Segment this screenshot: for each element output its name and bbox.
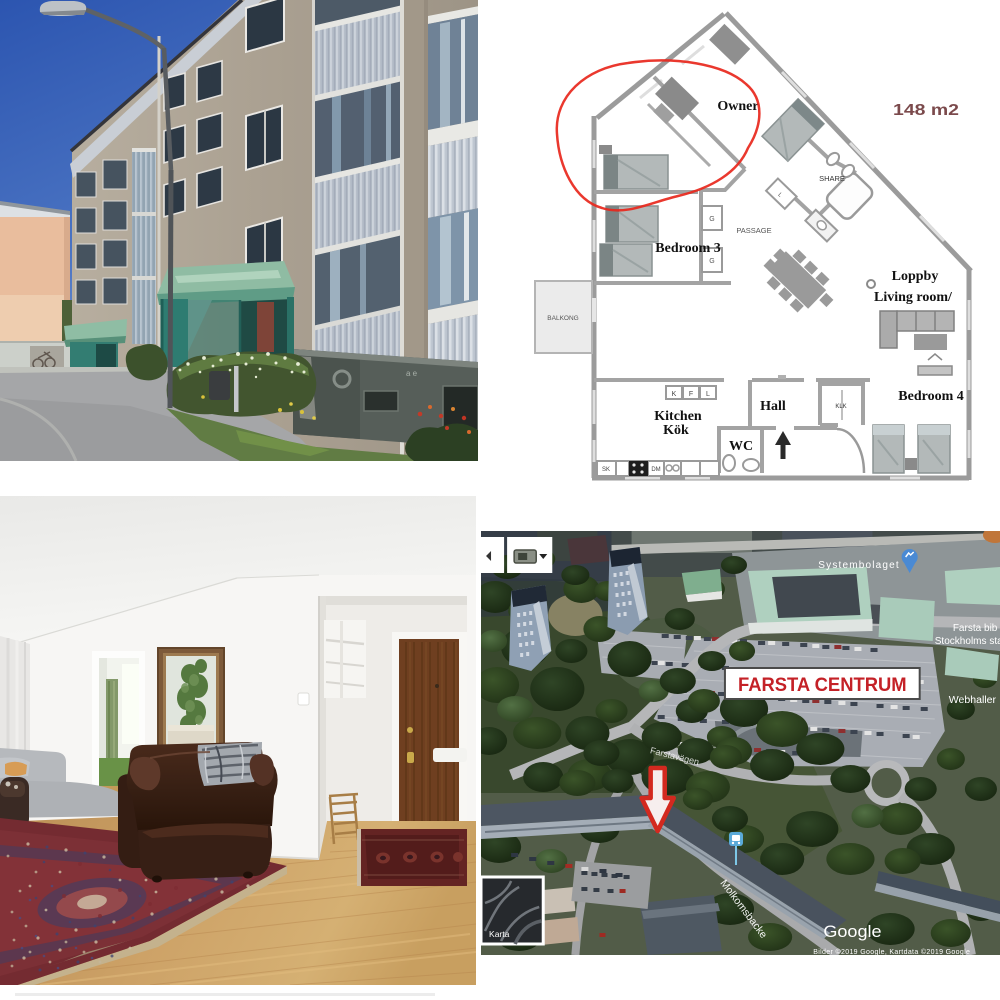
svg-text:Systembolaget: Systembolaget (818, 560, 899, 571)
svg-text:WC: WC (729, 439, 753, 454)
svg-text:Stockholms stads: Stockholms stads (935, 636, 1000, 647)
svg-text:Bilder ©2019 Google, Kartdata: Bilder ©2019 Google, Kartdata ©2019 Goog… (813, 948, 970, 955)
svg-text:DM: DM (651, 467, 660, 473)
svg-text:PASSAGE: PASSAGE (736, 226, 771, 235)
svg-text:SK: SK (602, 467, 610, 473)
svg-text:G: G (709, 258, 714, 265)
svg-text:SHARE: SHARE (819, 174, 845, 183)
svg-text:FARSTA CENTRUM: FARSTA CENTRUM (738, 675, 907, 696)
svg-text:K: K (672, 391, 677, 398)
svg-text:Bedroom 3: Bedroom 3 (655, 241, 720, 256)
svg-text:Loppby: Loppby (892, 269, 939, 284)
svg-text:L: L (706, 391, 710, 398)
svg-text:BALKONG: BALKONG (547, 315, 578, 322)
svg-text:Living room/: Living room/ (874, 290, 953, 305)
svg-text:Webhaller: Webhaller (949, 694, 997, 706)
svg-text:Bedroom 4: Bedroom 4 (898, 389, 963, 404)
svg-text:Hall: Hall (760, 399, 786, 414)
svg-text:F: F (689, 391, 693, 398)
svg-text:Karta: Karta (489, 929, 510, 939)
svg-text:Farsta bib: Farsta bib (953, 623, 998, 634)
svg-text:Kök: Kök (663, 423, 689, 438)
svg-text:G: G (709, 216, 714, 223)
svg-text:Kitchen: Kitchen (654, 409, 702, 424)
svg-text:a e: a e (406, 369, 418, 378)
svg-text:Owner: Owner (717, 99, 758, 114)
svg-text:148 m2: 148 m2 (893, 102, 959, 119)
svg-text:KLK: KLK (835, 404, 846, 410)
svg-text:Google: Google (823, 922, 881, 941)
